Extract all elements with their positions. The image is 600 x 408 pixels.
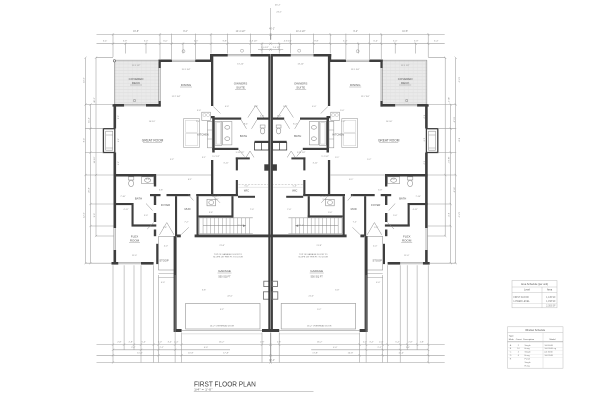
svg-text:4'-0": 4'-0" xyxy=(225,106,229,108)
svg-text:8'-4": 8'-4" xyxy=(83,138,85,143)
svg-text:11'-6": 11'-6" xyxy=(237,225,242,227)
svg-text:3'-6": 3'-6" xyxy=(209,212,213,214)
svg-text:5'-0": 5'-0" xyxy=(214,199,219,201)
svg-text:8'-4": 8'-4" xyxy=(244,124,248,126)
svg-text:11'-6": 11'-6" xyxy=(299,225,304,227)
svg-text:5'-4": 5'-4" xyxy=(395,341,399,343)
svg-text:5'-5": 5'-5" xyxy=(293,186,297,188)
svg-text:4'-8 1/2": 4'-8 1/2" xyxy=(249,40,257,42)
svg-text:3'-1": 3'-1" xyxy=(335,157,339,159)
svg-text:2'-0": 2'-0" xyxy=(379,341,383,343)
svg-text:2'-0": 2'-0" xyxy=(158,341,162,343)
svg-text:12'-0": 12'-0" xyxy=(457,212,459,218)
svg-text:3'-4": 3'-4" xyxy=(103,40,108,42)
svg-text:15'-4": 15'-4" xyxy=(88,117,90,123)
svg-text:16'-2" OVERHEAD DOOR: 16'-2" OVERHEAD DOOR xyxy=(210,325,235,328)
svg-text:92'-4": 92'-4" xyxy=(269,360,275,362)
svg-text:GARAGE: GARAGE xyxy=(310,269,323,273)
svg-text:BATH: BATH xyxy=(294,134,301,138)
svg-text:21'-8": 21'-8" xyxy=(317,245,323,247)
svg-text:5'-4": 5'-4" xyxy=(142,341,146,343)
svg-text:7'-2": 7'-2" xyxy=(353,222,357,224)
svg-text:6'-2": 6'-2" xyxy=(423,161,425,165)
svg-text:5'-2": 5'-2" xyxy=(367,159,371,161)
svg-text:14'-10": 14'-10" xyxy=(149,121,156,123)
svg-text:LNDRY: LNDRY xyxy=(320,194,329,198)
svg-text:8'-0": 8'-0" xyxy=(118,115,120,119)
svg-text:9'-2": 9'-2" xyxy=(220,309,224,311)
svg-text:SH 3040 eg: SH 3040 eg xyxy=(545,348,557,350)
svg-text:4'-0": 4'-0" xyxy=(204,347,208,349)
svg-text:Model: Model xyxy=(550,339,556,341)
svg-text:BATH: BATH xyxy=(135,197,142,201)
svg-text:11'-0": 11'-0" xyxy=(132,255,137,257)
svg-text:5'-3": 5'-3" xyxy=(194,40,199,42)
svg-text:9'-2": 9'-2" xyxy=(353,31,358,33)
svg-text:16'-2": 16'-2" xyxy=(219,341,225,343)
svg-text:16'-8": 16'-8" xyxy=(133,31,139,33)
svg-text:5'-11 1/2": 5'-11 1/2" xyxy=(297,152,306,154)
svg-text:13'-10": 13'-10" xyxy=(237,64,244,66)
svg-text:STOOP: STOOP xyxy=(159,258,169,262)
svg-text:4'-11": 4'-11" xyxy=(123,209,128,211)
svg-text:11'-0": 11'-0" xyxy=(137,353,143,355)
svg-text:3'-11": 3'-11" xyxy=(313,163,318,165)
svg-text:2'-8": 2'-8" xyxy=(420,341,424,343)
svg-text:4'-11": 4'-11" xyxy=(413,209,418,211)
svg-text:5'-0": 5'-0" xyxy=(277,116,281,118)
svg-text:9'-2": 9'-2" xyxy=(183,31,188,33)
svg-text:17'-8": 17'-8" xyxy=(223,353,229,355)
svg-text:2'-8": 2'-8" xyxy=(129,341,133,343)
svg-text:Level: Level xyxy=(524,289,530,292)
svg-text:Single: Single xyxy=(525,345,532,347)
svg-text:5'-9": 5'-9" xyxy=(123,40,128,42)
svg-text:5'-8": 5'-8" xyxy=(163,227,167,229)
svg-text:5'-5": 5'-5" xyxy=(244,186,248,188)
svg-text:7'-10": 7'-10" xyxy=(120,196,126,198)
svg-text:5'-8": 5'-8" xyxy=(374,227,378,229)
svg-text:Hung: Hung xyxy=(525,348,531,350)
svg-text:WIC: WIC xyxy=(244,188,249,192)
svg-text:2'-8": 2'-8" xyxy=(260,341,264,343)
svg-text:4'-0": 4'-0" xyxy=(312,106,316,108)
svg-text:FOYER: FOYER xyxy=(161,203,170,207)
svg-text:TOP OF GARAGE FLOOR TO: TOP OF GARAGE FLOOR TO xyxy=(299,253,328,256)
svg-text:ROOM: ROOM xyxy=(402,238,412,242)
svg-text:4'-0": 4'-0" xyxy=(333,347,337,349)
svg-text:Description: Description xyxy=(523,338,535,341)
svg-text:7'-0": 7'-0" xyxy=(250,209,254,211)
svg-text:3'-11": 3'-11" xyxy=(223,163,228,165)
svg-text:17'-8": 17'-8" xyxy=(312,353,318,355)
svg-text:10'-0": 10'-0" xyxy=(457,77,459,83)
svg-text:2,303 SF: 2,303 SF xyxy=(546,305,556,307)
svg-text:14'-10": 14'-10" xyxy=(447,157,449,164)
svg-text:5'-0": 5'-0" xyxy=(393,40,398,42)
svg-text:46'-2": 46'-2" xyxy=(275,4,281,6)
svg-text:KITCHEN: KITCHEN xyxy=(333,133,345,137)
svg-text:12'-0": 12'-0" xyxy=(83,212,85,218)
svg-text:WIC: WIC xyxy=(292,188,297,192)
svg-text:9'-8": 9'-8" xyxy=(314,40,319,42)
svg-text:5'-0": 5'-0" xyxy=(323,199,328,201)
svg-text:2'-8": 2'-8" xyxy=(408,341,412,343)
svg-text:3'-4": 3'-4" xyxy=(434,40,439,42)
svg-text:DECK: DECK xyxy=(132,81,140,85)
svg-text:6'-1": 6'-1" xyxy=(188,179,192,181)
svg-text:20'-8": 20'-8" xyxy=(452,187,454,193)
svg-text:2'-4": 2'-4" xyxy=(131,347,135,349)
svg-text:8'-4": 8'-4" xyxy=(293,124,297,126)
svg-text:9'-6": 9'-6" xyxy=(447,213,449,218)
svg-text:4'-6": 4'-6" xyxy=(423,138,425,142)
svg-text:3'-4": 3'-4" xyxy=(369,341,373,343)
svg-text:5'-2": 5'-2" xyxy=(170,159,174,161)
svg-text:4'-8 1/2": 4'-8 1/2" xyxy=(284,40,292,42)
svg-text:Single: Single xyxy=(525,362,532,364)
svg-text:DINING: DINING xyxy=(181,83,192,87)
svg-text:5'-11 1/2": 5'-11 1/2" xyxy=(236,152,245,154)
svg-text:2'-4": 2'-4" xyxy=(174,341,178,343)
svg-text:23'-1": 23'-1" xyxy=(276,12,282,14)
svg-text:3'-6": 3'-6" xyxy=(328,212,332,214)
svg-text:Hung: Hung xyxy=(525,365,531,367)
svg-text:14'-4 1/2": 14'-4 1/2" xyxy=(236,31,246,33)
svg-text:SH 6040: SH 6040 xyxy=(545,345,554,347)
svg-text:6'-2": 6'-2" xyxy=(118,161,120,165)
svg-text:5'-0": 5'-0" xyxy=(144,40,149,42)
svg-text:8'-0": 8'-0" xyxy=(423,115,425,119)
svg-text:Area: Area xyxy=(547,289,553,292)
svg-text:3'-8": 3'-8" xyxy=(254,106,258,108)
svg-text:6'-8": 6'-8" xyxy=(378,190,382,192)
svg-text:Single: Single xyxy=(525,352,532,354)
svg-text:7'-2": 7'-2" xyxy=(184,222,188,224)
svg-text:11'-1 1/2": 11'-1 1/2" xyxy=(132,65,141,67)
svg-text:8'-4": 8'-4" xyxy=(457,138,459,143)
svg-text:KITCHEN: KITCHEN xyxy=(197,133,209,137)
svg-text:3'-8": 3'-8" xyxy=(202,290,206,292)
svg-text:11'-0": 11'-0" xyxy=(398,353,404,355)
svg-text:2'-2": 2'-2" xyxy=(160,347,164,349)
svg-text:5'-9": 5'-9" xyxy=(414,40,419,42)
svg-text:15'-1 3/4": 15'-1 3/4" xyxy=(351,69,360,71)
svg-text:4'-0": 4'-0" xyxy=(164,246,168,248)
svg-text:1'-0 1/2": 1'-0 1/2" xyxy=(261,47,269,49)
svg-text:20'-8": 20'-8" xyxy=(88,187,90,193)
svg-text:1,158 SF: 1,158 SF xyxy=(546,301,556,303)
svg-text:11'-0": 11'-0" xyxy=(404,255,409,257)
svg-text:5'-7 1/2": 5'-7 1/2" xyxy=(321,156,329,158)
svg-text:1'-0 1/2": 1'-0 1/2" xyxy=(273,47,281,49)
svg-text:22'-0": 22'-0" xyxy=(227,296,233,298)
svg-text:MUD: MUD xyxy=(351,207,357,211)
svg-text:FIRST FLOOR: FIRST FLOOR xyxy=(514,297,529,299)
svg-text:10'-8": 10'-8" xyxy=(348,353,354,355)
svg-text:5'-0": 5'-0" xyxy=(393,215,397,217)
svg-text:ROOM: ROOM xyxy=(130,238,140,242)
svg-text:9'-0": 9'-0" xyxy=(340,110,344,112)
svg-text:6'-1": 6'-1" xyxy=(349,179,353,181)
svg-text:5'-3": 5'-3" xyxy=(343,40,348,42)
svg-text:LNDRY: LNDRY xyxy=(212,194,221,198)
svg-text:LOWER LEVEL: LOWER LEVEL xyxy=(514,301,531,303)
svg-text:Area Schedule (per unit): Area Schedule (per unit) xyxy=(521,283,548,286)
svg-text:10'-0": 10'-0" xyxy=(83,77,85,83)
svg-text:15'-1 3/4": 15'-1 3/4" xyxy=(182,69,191,71)
svg-text:5'-0": 5'-0" xyxy=(144,215,148,217)
svg-text:7'-10": 7'-10" xyxy=(416,196,422,198)
svg-text:BATH: BATH xyxy=(399,197,406,201)
svg-text:12'-7 3/4": 12'-7 3/4" xyxy=(172,96,181,98)
svg-text:SUITE: SUITE xyxy=(236,85,245,89)
svg-text:7'-0": 7'-0" xyxy=(287,209,291,211)
svg-text:15'-4": 15'-4" xyxy=(452,117,454,123)
svg-text:2'-8": 2'-8" xyxy=(391,179,395,181)
svg-text:SH 2640: SH 2640 xyxy=(545,355,554,357)
svg-text:22'-0": 22'-0" xyxy=(309,296,315,298)
svg-text:9'-8": 9'-8" xyxy=(223,40,228,42)
svg-text:10'-8": 10'-8" xyxy=(188,353,194,355)
svg-text:6'-8": 6'-8" xyxy=(159,190,163,192)
svg-text:16'-2" OVERHEAD DOOR: 16'-2" OVERHEAD DOOR xyxy=(307,325,332,328)
svg-text:2'-6": 2'-6" xyxy=(341,121,345,123)
svg-text:GREAT ROOM: GREAT ROOM xyxy=(378,139,400,143)
svg-text:6'-0": 6'-0" xyxy=(163,40,168,42)
svg-text:5'-7 1/2": 5'-7 1/2" xyxy=(212,156,220,158)
svg-text:GREAT ROOM: GREAT ROOM xyxy=(142,139,164,143)
svg-text:DECK: DECK xyxy=(401,81,409,85)
svg-text:11'-1 1/2": 11'-1 1/2" xyxy=(401,65,410,67)
svg-text:Count: Count xyxy=(516,338,522,341)
svg-text:550 SQ FT: 550 SQ FT xyxy=(311,275,324,278)
svg-text:SLOPE 1/8" PER FT. TO DOOR: SLOPE 1/8" PER FT. TO DOOR xyxy=(213,257,243,259)
svg-text:DINING: DINING xyxy=(350,83,361,87)
svg-text:4'-6": 4'-6" xyxy=(118,138,120,142)
svg-text:2'-2": 2'-2" xyxy=(378,347,382,349)
svg-text:3'-4": 3'-4" xyxy=(168,341,172,343)
svg-text:2'-8": 2'-8" xyxy=(117,341,121,343)
svg-text:14'-10": 14'-10" xyxy=(386,121,393,123)
svg-text:14'-4 1/2": 14'-4 1/2" xyxy=(296,31,306,33)
svg-text:550 SQ FT: 550 SQ FT xyxy=(218,275,231,278)
svg-text:Panel: Panel xyxy=(525,358,531,360)
svg-text:46'-2": 46'-2" xyxy=(269,29,275,31)
svg-text:2'-6": 2'-6" xyxy=(196,121,200,123)
svg-text:3'-8": 3'-8" xyxy=(283,106,287,108)
svg-text:5'-0": 5'-0" xyxy=(260,116,264,118)
svg-text:6'-0": 6'-0" xyxy=(374,40,379,42)
svg-text:16'-2": 16'-2" xyxy=(317,341,323,343)
svg-text:Type: Type xyxy=(509,335,515,337)
svg-text:46'-2": 46'-2" xyxy=(94,97,96,103)
svg-text:4'-0": 4'-0" xyxy=(161,282,165,284)
svg-text:16'-8": 16'-8" xyxy=(402,31,408,33)
svg-text:9'-6": 9'-6" xyxy=(94,213,96,218)
svg-text:FOYER: FOYER xyxy=(371,203,380,207)
svg-text:BATH: BATH xyxy=(240,134,247,138)
svg-text:1/4" = 1'-0": 1/4" = 1'-0" xyxy=(194,387,213,391)
svg-text:3'-8": 3'-8" xyxy=(335,290,339,292)
svg-text:2'-8": 2'-8" xyxy=(146,179,150,181)
svg-text:(2) 3040: (2) 3040 xyxy=(545,352,554,354)
svg-text:4'-0": 4'-0" xyxy=(376,282,380,284)
svg-text:9'-2": 9'-2" xyxy=(317,309,321,311)
svg-text:21'-8": 21'-8" xyxy=(219,245,225,247)
svg-text:STOOP: STOOP xyxy=(373,258,383,262)
svg-text:MUD: MUD xyxy=(184,207,190,211)
svg-text:4'-0": 4'-0" xyxy=(373,246,377,248)
svg-text:TOP OF GARAGE FLOOR TO: TOP OF GARAGE FLOOR TO xyxy=(214,253,243,256)
svg-text:2'-4": 2'-4" xyxy=(363,341,367,343)
svg-text:12'-7 3/4": 12'-7 3/4" xyxy=(361,96,370,98)
svg-text:GARAGE: GARAGE xyxy=(218,269,231,273)
svg-text:SLOPE 1/8" PER FT. TO DOOR: SLOPE 1/8" PER FT. TO DOOR xyxy=(298,257,328,259)
svg-text:14'-10": 14'-10" xyxy=(94,156,96,163)
svg-text:46'-2": 46'-2" xyxy=(447,97,449,103)
svg-text:Window Schedule: Window Schedule xyxy=(525,329,546,332)
svg-text:13'-10": 13'-10" xyxy=(297,64,304,66)
svg-text:Hung: Hung xyxy=(525,355,531,357)
svg-text:2'-8": 2'-8" xyxy=(277,341,281,343)
svg-text:9'-0": 9'-0" xyxy=(197,110,201,112)
svg-text:3'-1": 3'-1" xyxy=(202,157,206,159)
svg-text:2'-4": 2'-4" xyxy=(406,347,410,349)
svg-text:1,145 SF: 1,145 SF xyxy=(546,297,556,299)
svg-text:SUITE: SUITE xyxy=(296,85,305,89)
